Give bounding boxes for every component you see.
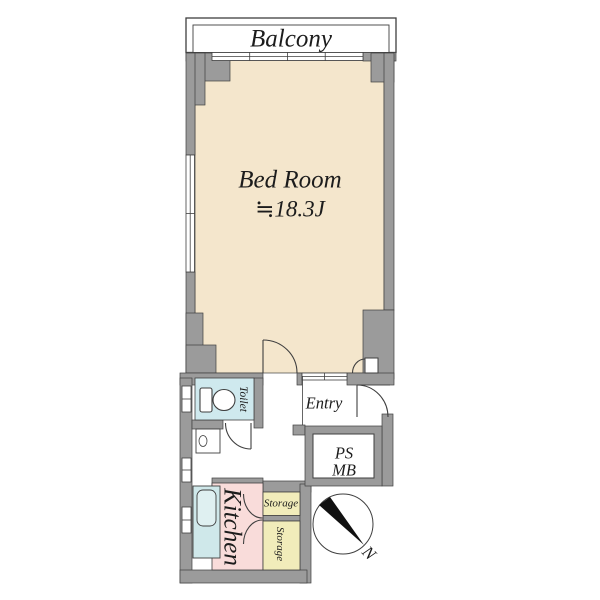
kitchen-label: Kitchen bbox=[219, 487, 246, 566]
toilet-door-swing bbox=[226, 423, 252, 449]
entrance-door-swing bbox=[357, 385, 388, 417]
shaft-mb-label: MB bbox=[331, 461, 356, 480]
wall-storage-right bbox=[300, 484, 311, 583]
bedroom-name-label: Bed Room bbox=[238, 167, 341, 194]
toilet-bowl-icon bbox=[213, 390, 235, 411]
bedroom-size-label: ≒18.3J bbox=[255, 197, 327, 222]
balcony-label: Balcony bbox=[250, 26, 333, 53]
floor-plan-page: Balcony bbox=[0, 0, 600, 600]
wall-right-upper bbox=[384, 53, 394, 310]
pillar-bottom-left bbox=[186, 345, 216, 373]
storage-upper-label: Storage bbox=[264, 498, 298, 510]
wall-entry-bottom-stub bbox=[293, 425, 305, 435]
balcony: Balcony bbox=[186, 18, 396, 53]
toilet-tank-icon bbox=[200, 388, 212, 412]
wall-bedroom-bottom-stub bbox=[297, 373, 302, 385]
wall-toilet-right bbox=[254, 378, 263, 428]
storage-lower-label: Storage bbox=[274, 527, 286, 561]
kitchen-sink-icon bbox=[197, 490, 216, 526]
wall-entry-top bbox=[347, 373, 394, 385]
toilet-label: Toilet bbox=[237, 386, 249, 413]
wall-left-upper bbox=[186, 53, 195, 155]
entry-label: Entry bbox=[305, 394, 343, 413]
compass: N bbox=[313, 494, 381, 565]
washbasin-bowl-icon bbox=[199, 436, 207, 447]
wall-toilet-bottom bbox=[192, 420, 223, 429]
bedroom-closet-door-panel bbox=[365, 358, 378, 373]
floor-plan-drawing: Balcony bbox=[0, 0, 600, 600]
wall-storage-divider bbox=[263, 516, 302, 522]
wall-bottom bbox=[180, 570, 307, 583]
wall-right-lower bbox=[382, 414, 393, 486]
